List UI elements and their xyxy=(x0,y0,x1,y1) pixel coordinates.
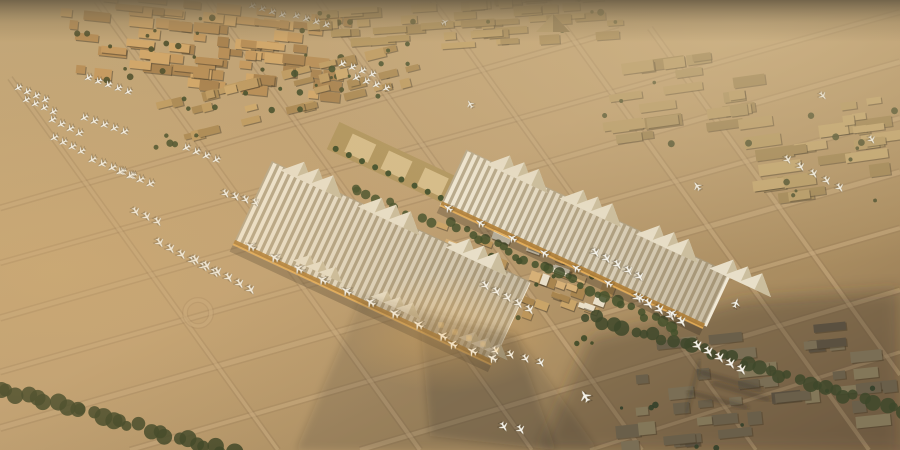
terminal-glow xyxy=(340,273,560,393)
horizon-band xyxy=(0,0,900,42)
aerial-airport-render xyxy=(0,0,900,450)
scene-canvas xyxy=(0,0,900,450)
